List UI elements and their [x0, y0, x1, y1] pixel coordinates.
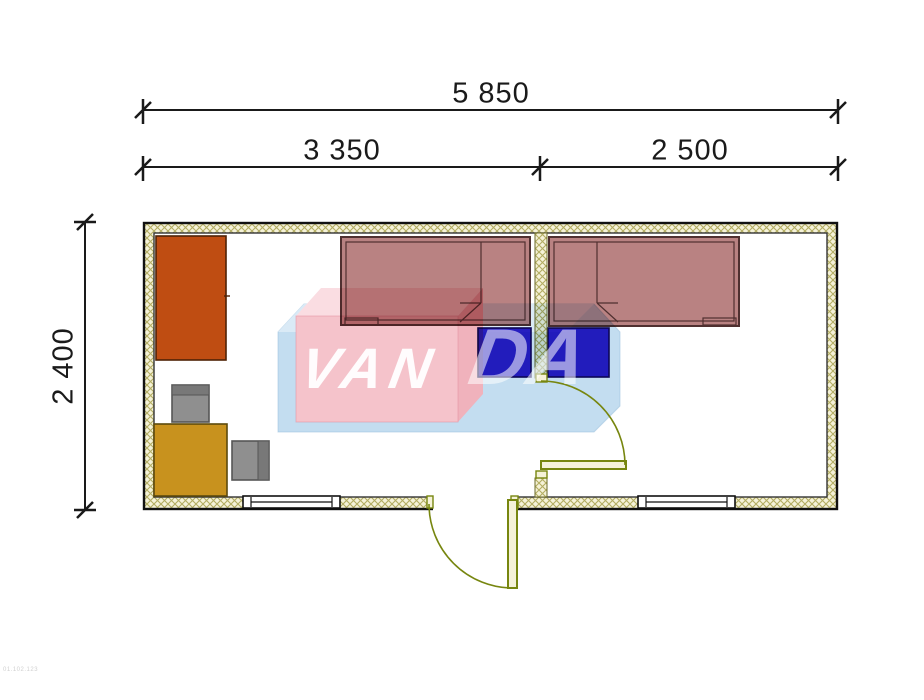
table [154, 424, 227, 496]
wardrobe [156, 236, 226, 360]
corner-code: 01.102.123 [3, 667, 38, 673]
dimension-label-right-room-width: 2 500 [651, 135, 729, 168]
dimension-label-total-width: 5 850 [452, 78, 530, 111]
watermark-text-van: VAN [296, 341, 443, 398]
interior-door-leaf [541, 461, 626, 469]
desk-chair-right [232, 441, 269, 480]
watermark-pink-slab-top-face [296, 288, 483, 316]
window-left [243, 496, 340, 508]
desk-chair-top [172, 385, 209, 422]
entrance-opening [433, 493, 511, 512]
window-right [638, 496, 735, 508]
floor-plan-page: 5 850 3 350 2 500 2 400 VAN DA 01.102.12… [0, 0, 924, 700]
interior-door-jamb-bottom [536, 471, 547, 478]
dimension-label-depth: 2 400 [48, 327, 81, 405]
entrance-door-swing-arc [429, 504, 513, 588]
entrance-door-leaf [508, 500, 517, 588]
watermark-text-da: DA [464, 317, 594, 396]
entrance-jamb-left [427, 496, 433, 508]
dimension-label-left-room-width: 3 350 [303, 135, 381, 168]
dimension-line-room-widths [135, 156, 846, 181]
